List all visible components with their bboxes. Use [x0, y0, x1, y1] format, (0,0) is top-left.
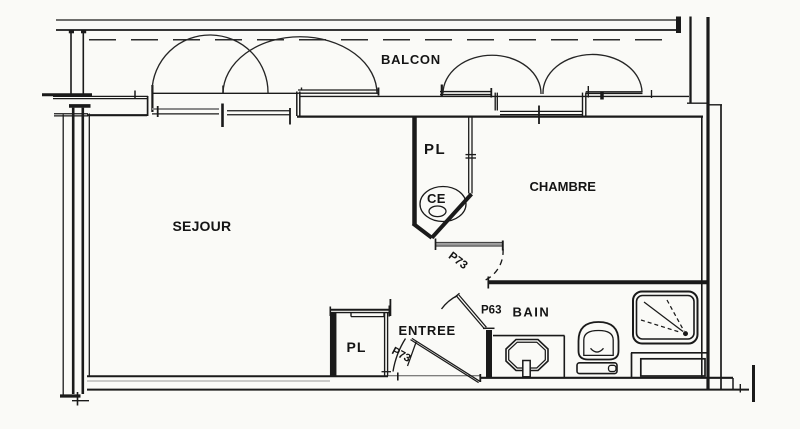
svg-text:CE: CE: [427, 191, 446, 206]
svg-text:BAIN: BAIN: [513, 305, 551, 320]
svg-text:ENTREE: ENTREE: [399, 323, 457, 338]
svg-text:PL: PL: [424, 141, 446, 158]
svg-text:SEJOUR: SEJOUR: [173, 218, 232, 234]
svg-text:PL: PL: [347, 339, 367, 355]
svg-text:P63: P63: [481, 305, 501, 317]
svg-text:CHAMBRE: CHAMBRE: [530, 179, 597, 194]
svg-text:BALCON: BALCON: [381, 52, 441, 67]
